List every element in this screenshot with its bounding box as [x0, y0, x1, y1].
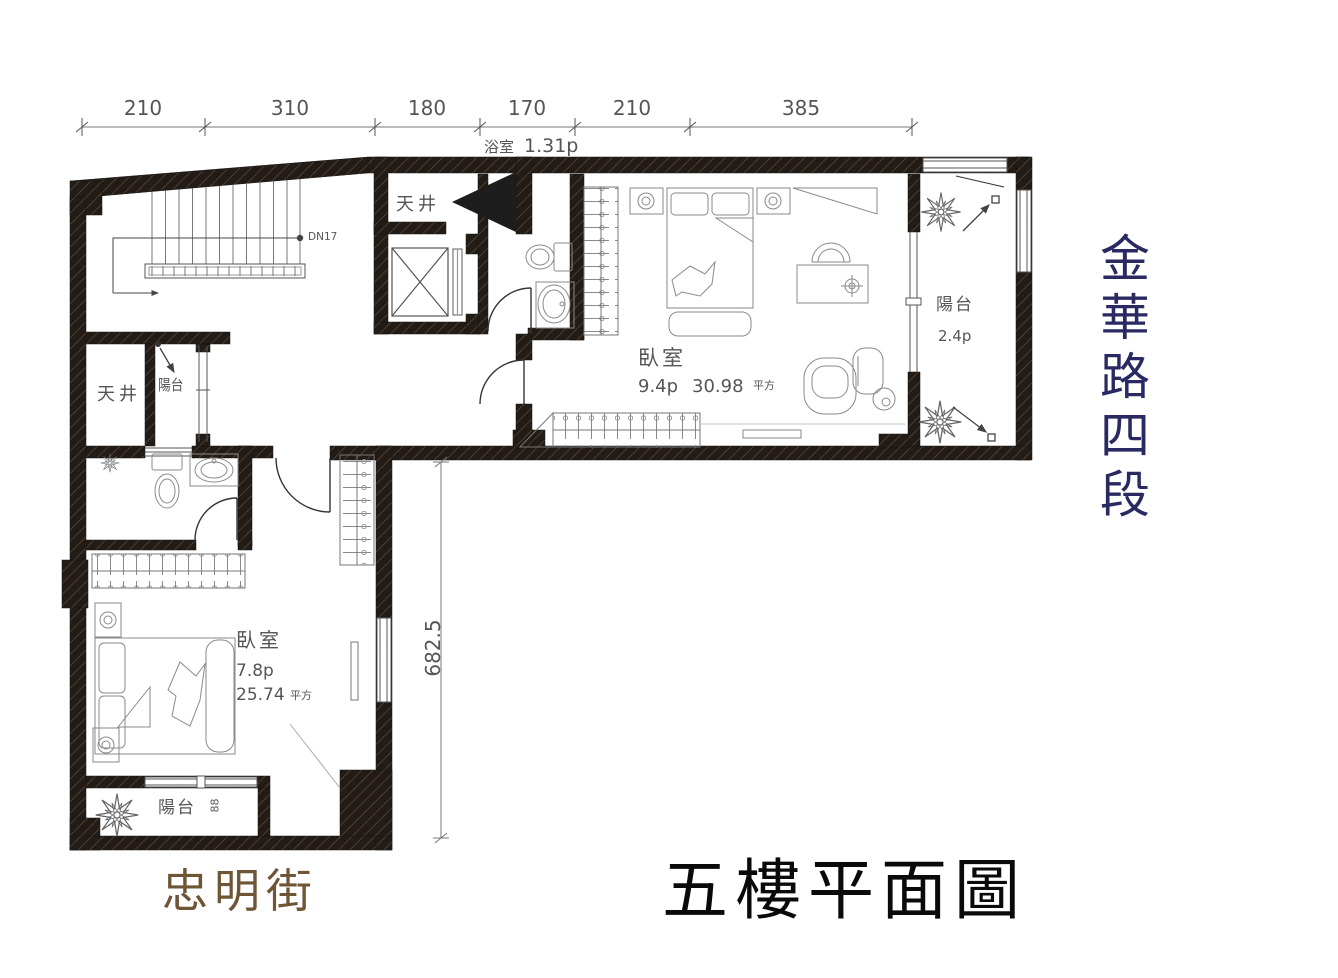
bathroom-area-label: 1.31p	[524, 137, 578, 156]
armchair	[853, 348, 883, 394]
double-bed	[667, 188, 753, 336]
street-name-bottom: 忠明街	[162, 868, 318, 914]
right-bedroom-furniture	[630, 188, 905, 438]
nightstand	[95, 603, 121, 637]
elevator	[392, 248, 462, 316]
balcony-bottom-note: 88	[210, 799, 221, 813]
lightwell-left-label: 天井	[97, 386, 141, 404]
dim-top-6: 385	[766, 98, 836, 118]
plant-icon	[96, 794, 139, 837]
dim-top-3: 180	[392, 98, 462, 118]
floor-plan-page: 210 310 180 170 210 385 浴室 1.31p 天井 DN17…	[0, 0, 1338, 978]
balcony-bottom-label: 陽台	[158, 800, 196, 817]
sink-icon	[536, 282, 574, 328]
nightstand	[757, 188, 790, 214]
bedroom-right-area-m2: 30.98	[692, 378, 744, 396]
stairs	[113, 179, 305, 293]
nightstand	[93, 728, 119, 762]
plants	[96, 192, 962, 836]
armchair	[804, 358, 856, 414]
bedroom-lower-label: 臥室	[236, 630, 282, 650]
bedroom-lower-area-m2: 25.74	[236, 687, 285, 704]
desk-chair	[812, 243, 850, 262]
stairs-dn-label: DN17	[308, 232, 337, 243]
floor-mat	[743, 430, 801, 438]
sink-icon	[190, 454, 238, 486]
balcony-right-label: 陽台	[936, 297, 974, 314]
dim-top-5: 210	[597, 98, 667, 118]
toilet-icon	[526, 243, 572, 271]
bedroom-lower-area-p: 7.8p	[236, 663, 274, 680]
dim-top-4: 170	[492, 98, 562, 118]
bathroom-label: 浴室	[484, 140, 514, 155]
lightwell-top-label: 天井	[396, 196, 440, 214]
bedroom-right-area-unit: 平方	[753, 380, 775, 391]
side-table	[873, 388, 895, 410]
plant-icon	[919, 401, 962, 444]
plant-icon	[921, 192, 960, 231]
page-title: 五樓平面圖	[662, 858, 1027, 924]
toilet-icon	[152, 454, 182, 508]
single-bed	[95, 638, 235, 754]
desk	[797, 265, 868, 303]
dim-left-vertical: 682.5	[423, 613, 443, 683]
balcony-right-area: 2.4p	[938, 329, 971, 344]
dim-top-2: 310	[255, 98, 325, 118]
dim-top-1: 210	[108, 98, 178, 118]
corner-shelf	[793, 188, 877, 214]
bedroom-right-area-p: 9.4p	[638, 378, 678, 396]
bedroom-lower-area-unit: 平方	[290, 690, 312, 701]
balcony-left-label: 陽台	[158, 378, 184, 393]
street-name-right: 金華路四段	[1096, 232, 1146, 562]
dimension-lines	[76, 118, 918, 843]
bedroom-right-label: 臥室	[638, 348, 686, 369]
top-bathroom	[526, 243, 574, 328]
nightstand	[630, 188, 663, 214]
